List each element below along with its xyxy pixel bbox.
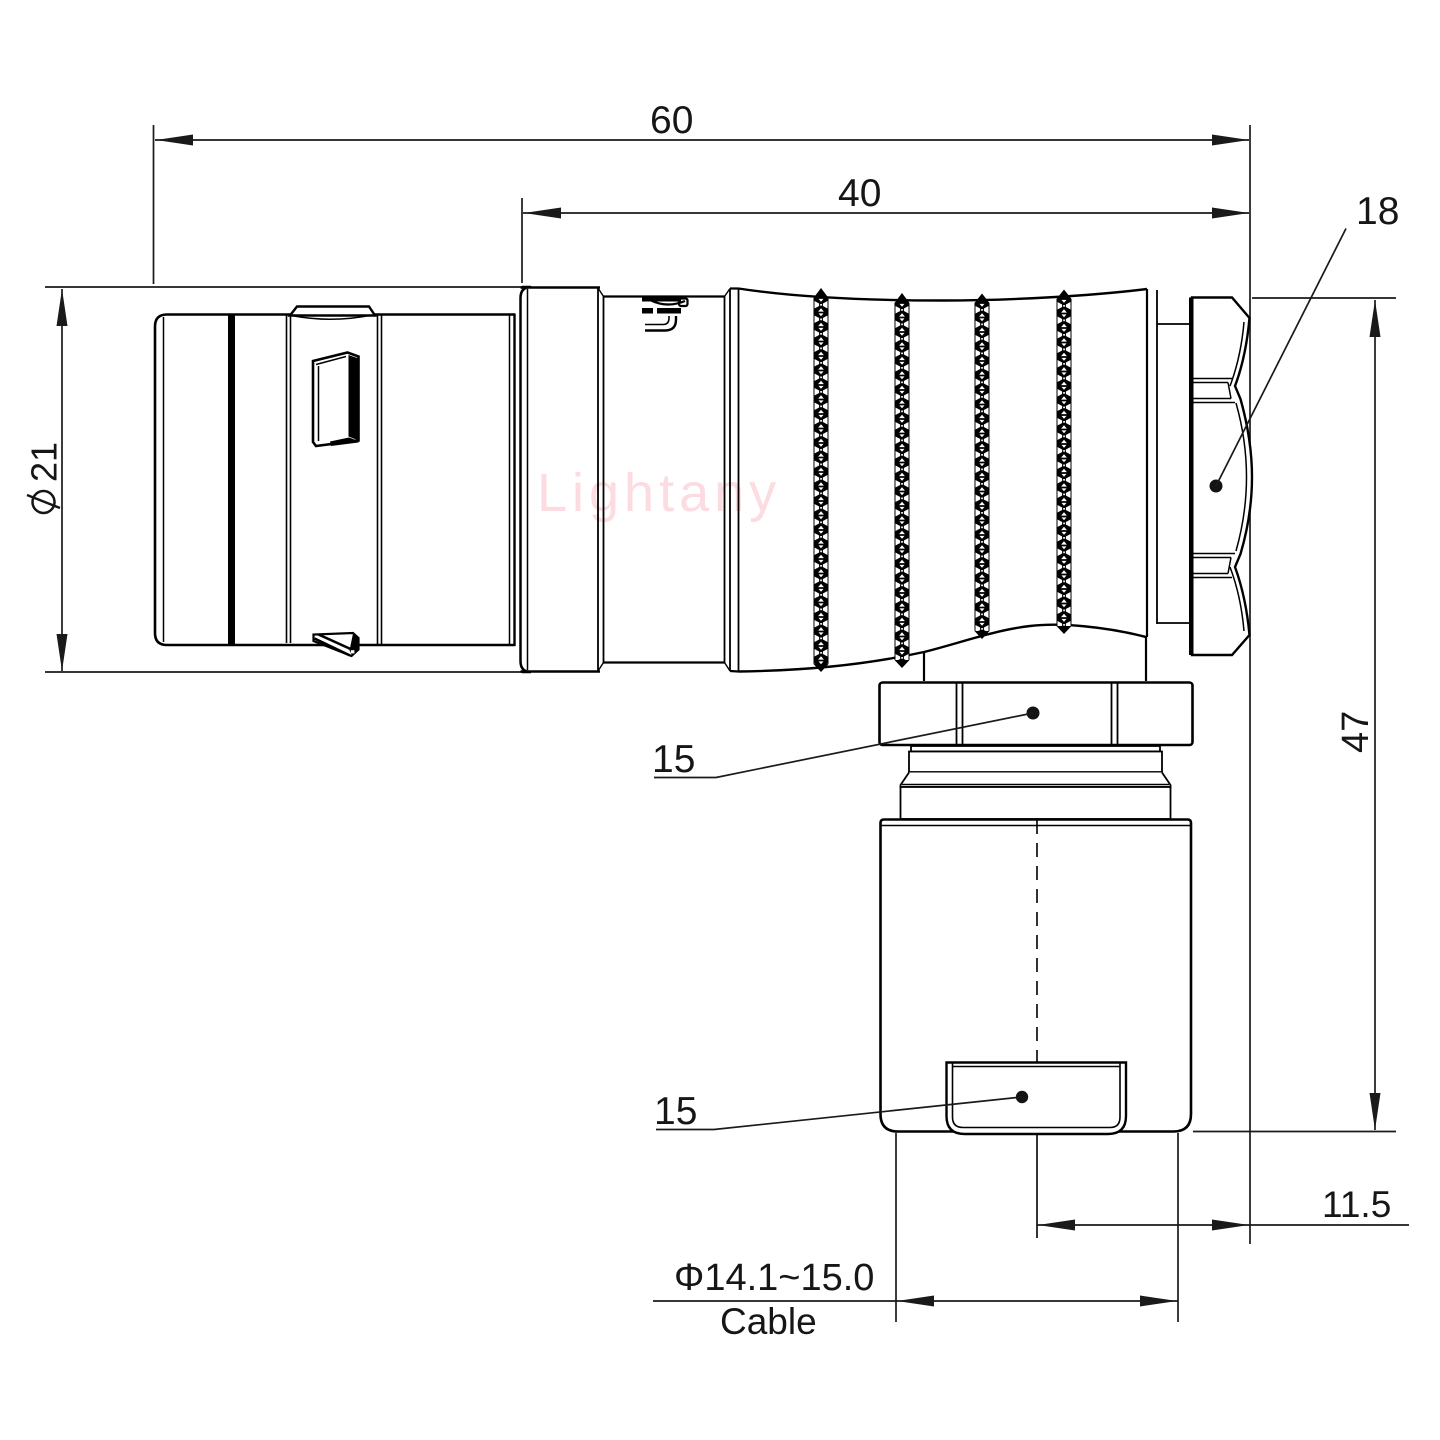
svg-text:40: 40 xyxy=(838,172,881,215)
svg-text:47: 47 xyxy=(1335,711,1377,753)
svg-text:Lightany: Lightany xyxy=(537,463,781,523)
svg-text:11.5: 11.5 xyxy=(1322,1184,1391,1225)
svg-text:60: 60 xyxy=(650,99,693,142)
svg-text:18: 18 xyxy=(1356,190,1399,233)
svg-text:Cable: Cable xyxy=(720,1301,817,1342)
svg-text:Φ14.1~15.0: Φ14.1~15.0 xyxy=(674,1257,874,1299)
svg-text:21: 21 xyxy=(24,442,65,482)
svg-text:15: 15 xyxy=(654,1090,697,1133)
svg-text:15: 15 xyxy=(652,738,695,781)
